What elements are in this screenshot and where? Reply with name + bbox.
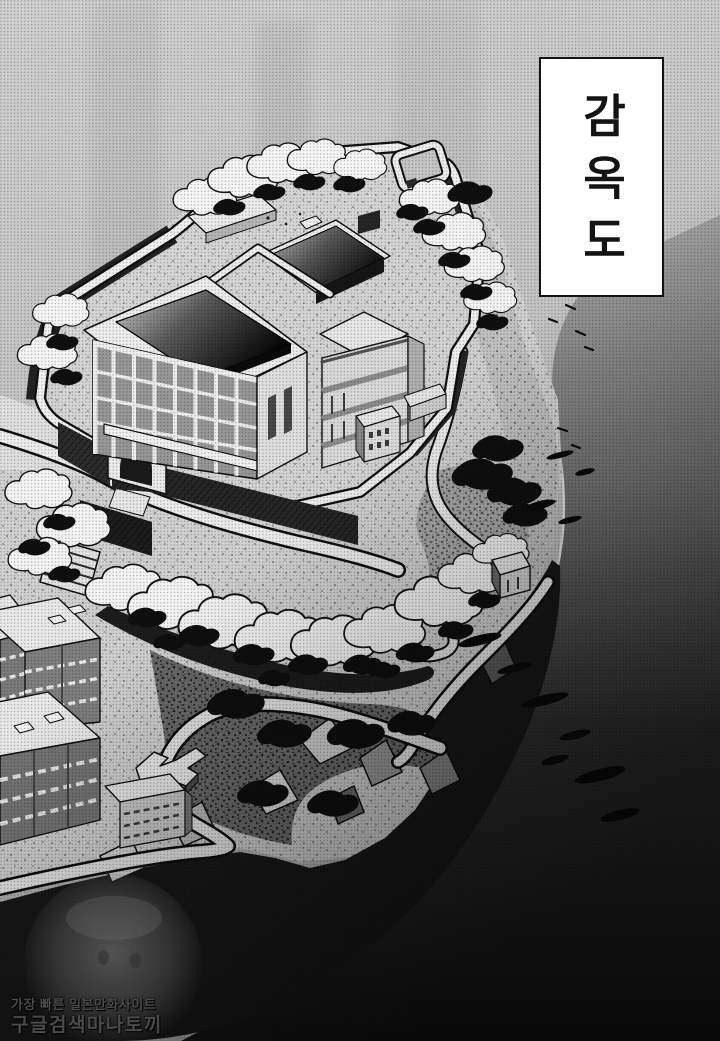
title-text: 감옥도 bbox=[579, 92, 625, 278]
manga-page: 감옥도 가장 빠른 일본만화사이트 구글검색마나토끼 bbox=[0, 0, 720, 1041]
title-box: 감옥도 bbox=[539, 57, 664, 297]
